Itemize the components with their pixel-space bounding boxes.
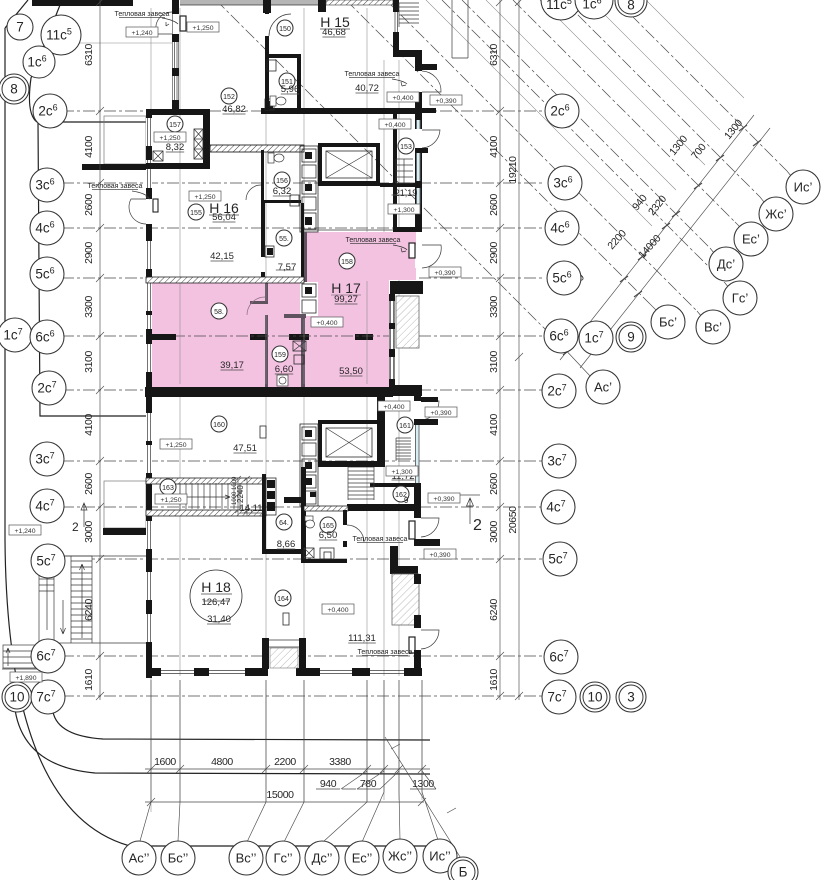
svg-text:Ас’’: Ас’’ [129,851,150,866]
svg-text:3300: 3300 [488,296,500,318]
svg-text:39,17: 39,17 [220,360,244,371]
svg-text:6240: 6240 [83,599,95,621]
svg-text:111,31: 111,31 [348,633,376,644]
svg-text:+1,250: +1,250 [166,442,187,449]
svg-text:8: 8 [627,0,635,13]
svg-text:3100: 3100 [488,351,500,373]
svg-text:8: 8 [10,82,18,97]
svg-text:3000: 3000 [488,521,500,543]
svg-text:152: 152 [223,94,235,101]
svg-text:+1,240: +1,240 [132,30,153,37]
svg-text:55.: 55. [279,236,289,243]
svg-text:+0,400: +0,400 [385,122,406,129]
svg-text:+1,240: +1,240 [15,528,36,535]
svg-text:53,50: 53,50 [339,366,363,377]
svg-text:+1,250: +1,250 [160,135,181,142]
svg-text:2600: 2600 [83,194,95,216]
svg-text:4800: 4800 [211,756,233,768]
svg-text:3100: 3100 [83,351,95,373]
svg-text:+1,250: +1,250 [193,25,214,32]
svg-text:31,40: 31,40 [207,614,231,625]
svg-text:8,66: 8,66 [277,539,296,550]
svg-text:1600: 1600 [154,756,176,768]
svg-text:6310: 6310 [83,44,95,66]
svg-text:1610: 1610 [83,669,95,691]
svg-text:46,82: 46,82 [222,104,246,115]
svg-text:58.: 58. [214,309,224,316]
svg-text:4100: 4100 [488,414,500,436]
svg-text:+0,390: +0,390 [430,552,451,559]
svg-text:9: 9 [627,330,635,345]
svg-text:4100: 4100 [488,136,500,158]
svg-text:6310: 6310 [488,44,500,66]
svg-text:1300: 1300 [412,778,434,790]
svg-text:Б: Б [459,865,468,880]
svg-text:Жс’’: Жс’’ [388,849,412,864]
svg-text:165: 165 [322,523,334,530]
svg-text:64.: 64. [279,520,289,527]
svg-text:4100: 4100 [83,136,95,158]
svg-text:780: 780 [360,778,377,790]
svg-text:160: 160 [213,422,225,429]
svg-text:14,11: 14,11 [239,503,262,514]
svg-text:2900: 2900 [488,242,500,264]
svg-text:Н 15: Н 15 [320,14,350,30]
svg-text:10: 10 [9,690,24,705]
svg-text:20650: 20650 [507,506,519,534]
svg-text:Вс’’: Вс’’ [236,851,257,866]
svg-text:6,60: 6,60 [275,364,294,375]
svg-text:7,57: 7,57 [278,262,297,273]
svg-text:157: 157 [169,122,181,129]
svg-text:2: 2 [72,520,79,534]
svg-text:Бс’’: Бс’’ [168,851,189,866]
svg-text:5,96: 5,96 [281,84,300,95]
svg-text:Ес’’: Ес’’ [352,851,373,866]
svg-text:+0,400: +0,400 [384,404,405,411]
svg-text:Н 18: Н 18 [201,579,231,595]
svg-text:Н 17: Н 17 [331,280,361,296]
svg-text:126,47: 126,47 [201,597,230,608]
svg-text:+1,890: +1,890 [16,675,37,682]
svg-text:+1,300: +1,300 [392,469,413,476]
svg-text:+1,300: +1,300 [394,207,415,214]
svg-text:164: 164 [277,596,289,603]
svg-text:Бс’: Бс’ [659,315,677,330]
svg-text:9: 9 [404,496,409,505]
svg-text:Дс’’: Дс’’ [312,851,333,866]
svg-text:159: 159 [274,352,286,359]
svg-text:15000: 15000 [266,789,294,801]
svg-text:+0,400: +0,400 [317,320,338,327]
svg-text:Тепловая завеса: Тепловая завеса [346,237,401,244]
svg-text:47,51: 47,51 [233,443,257,454]
svg-text:3380: 3380 [329,756,351,768]
svg-text:3000: 3000 [83,521,95,543]
svg-text:40,72: 40,72 [355,83,379,94]
svg-text:Тепловая завеса: Тепловая завеса [88,183,143,190]
svg-text:6,32: 6,32 [273,186,292,197]
svg-text:21,19: 21,19 [395,188,418,198]
svg-text:+0,400: +0,400 [393,95,414,102]
svg-text:1000 1000: 1000 1000 [232,476,238,505]
svg-text:42,15: 42,15 [210,251,234,262]
svg-text:+0,400: +0,400 [328,607,349,614]
svg-text:10: 10 [587,690,602,705]
svg-text:+0,390: +0,390 [435,270,456,277]
svg-text:7: 7 [16,20,24,35]
svg-text:2: 2 [473,517,482,534]
svg-text:Тепловая завеса: Тепловая завеса [353,536,408,543]
svg-text:19210: 19210 [507,156,519,184]
svg-text:Дс’: Дс’ [717,257,735,272]
svg-text:Ес’: Ес’ [742,232,760,247]
svg-text:8,32: 8,32 [166,142,185,153]
svg-text:6240: 6240 [488,599,500,621]
svg-text:+0,390: +0,390 [434,496,455,503]
svg-text:158: 158 [341,259,353,266]
svg-text:Ис’’: Ис’’ [429,849,450,864]
svg-text:Тепловая завеса: Тепловая завеса [358,649,413,656]
svg-text:3: 3 [627,690,635,705]
svg-text:+1,250: +1,250 [161,497,182,504]
svg-text:+0,390: +0,390 [431,410,452,417]
svg-text:150: 150 [279,26,291,33]
svg-text:Гс’’: Гс’’ [273,851,292,866]
svg-text:6,50: 6,50 [319,530,338,541]
svg-text:940: 940 [320,778,337,790]
svg-text:2600: 2600 [488,473,500,495]
svg-text:Вс’: Вс’ [704,320,722,335]
svg-text:Ис’: Ис’ [794,180,813,195]
svg-text:Тепловая завеса: Тепловая завеса [345,71,400,78]
svg-text:Жс’: Жс’ [765,207,787,222]
svg-text:3300: 3300 [83,296,95,318]
svg-text:153: 153 [400,144,412,151]
svg-text:Ас’: Ас’ [594,380,612,395]
svg-text:156: 156 [276,178,288,185]
svg-text:+0,390: +0,390 [436,98,457,105]
svg-text:1610: 1610 [488,669,500,691]
svg-text:2900: 2900 [83,242,95,264]
svg-text:163: 163 [162,485,174,492]
svg-text:2200: 2200 [274,756,296,768]
svg-text:Гс’: Гс’ [732,291,749,306]
svg-text:Н 16: Н 16 [209,200,239,216]
svg-text:155: 155 [190,210,202,217]
svg-text:Тепловая завеса: Тепловая завеса [115,11,170,18]
svg-text:4100: 4100 [83,414,95,436]
svg-text:2600: 2600 [488,194,500,216]
svg-text:2600: 2600 [83,473,95,495]
svg-text:161: 161 [399,423,411,430]
